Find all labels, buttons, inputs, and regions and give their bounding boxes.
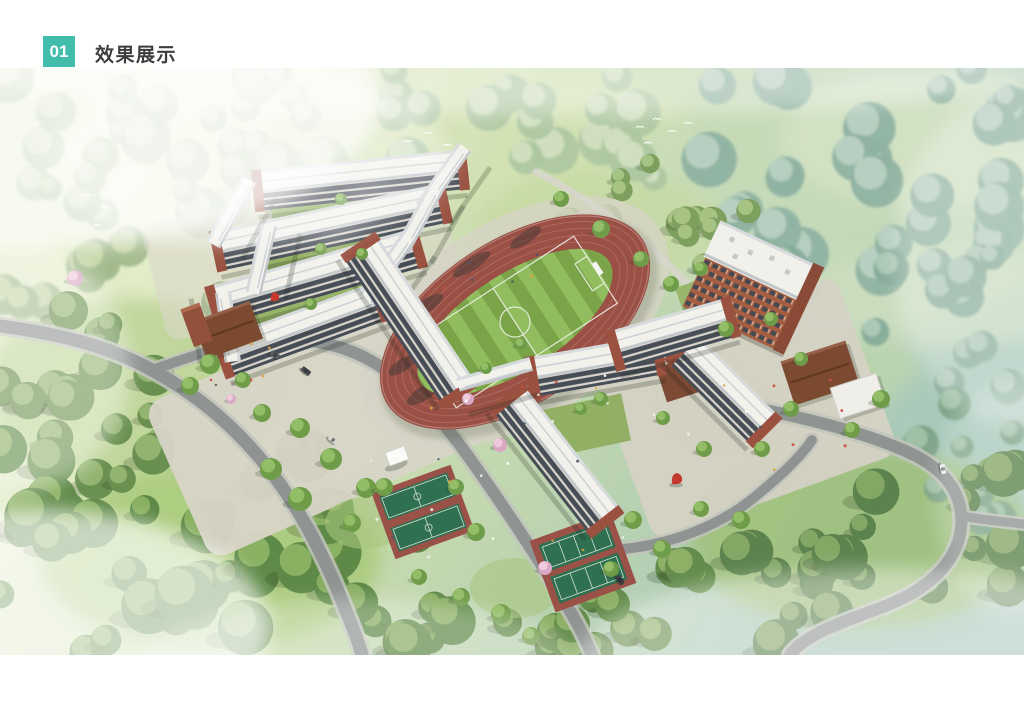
section-number-badge: 01 — [43, 36, 75, 67]
rendering-canvas — [0, 68, 1024, 655]
campus-rendering-image — [0, 68, 1024, 655]
presentation-slide: 01 效果展示 — [0, 0, 1024, 724]
section-title: 效果展示 — [95, 40, 177, 67]
